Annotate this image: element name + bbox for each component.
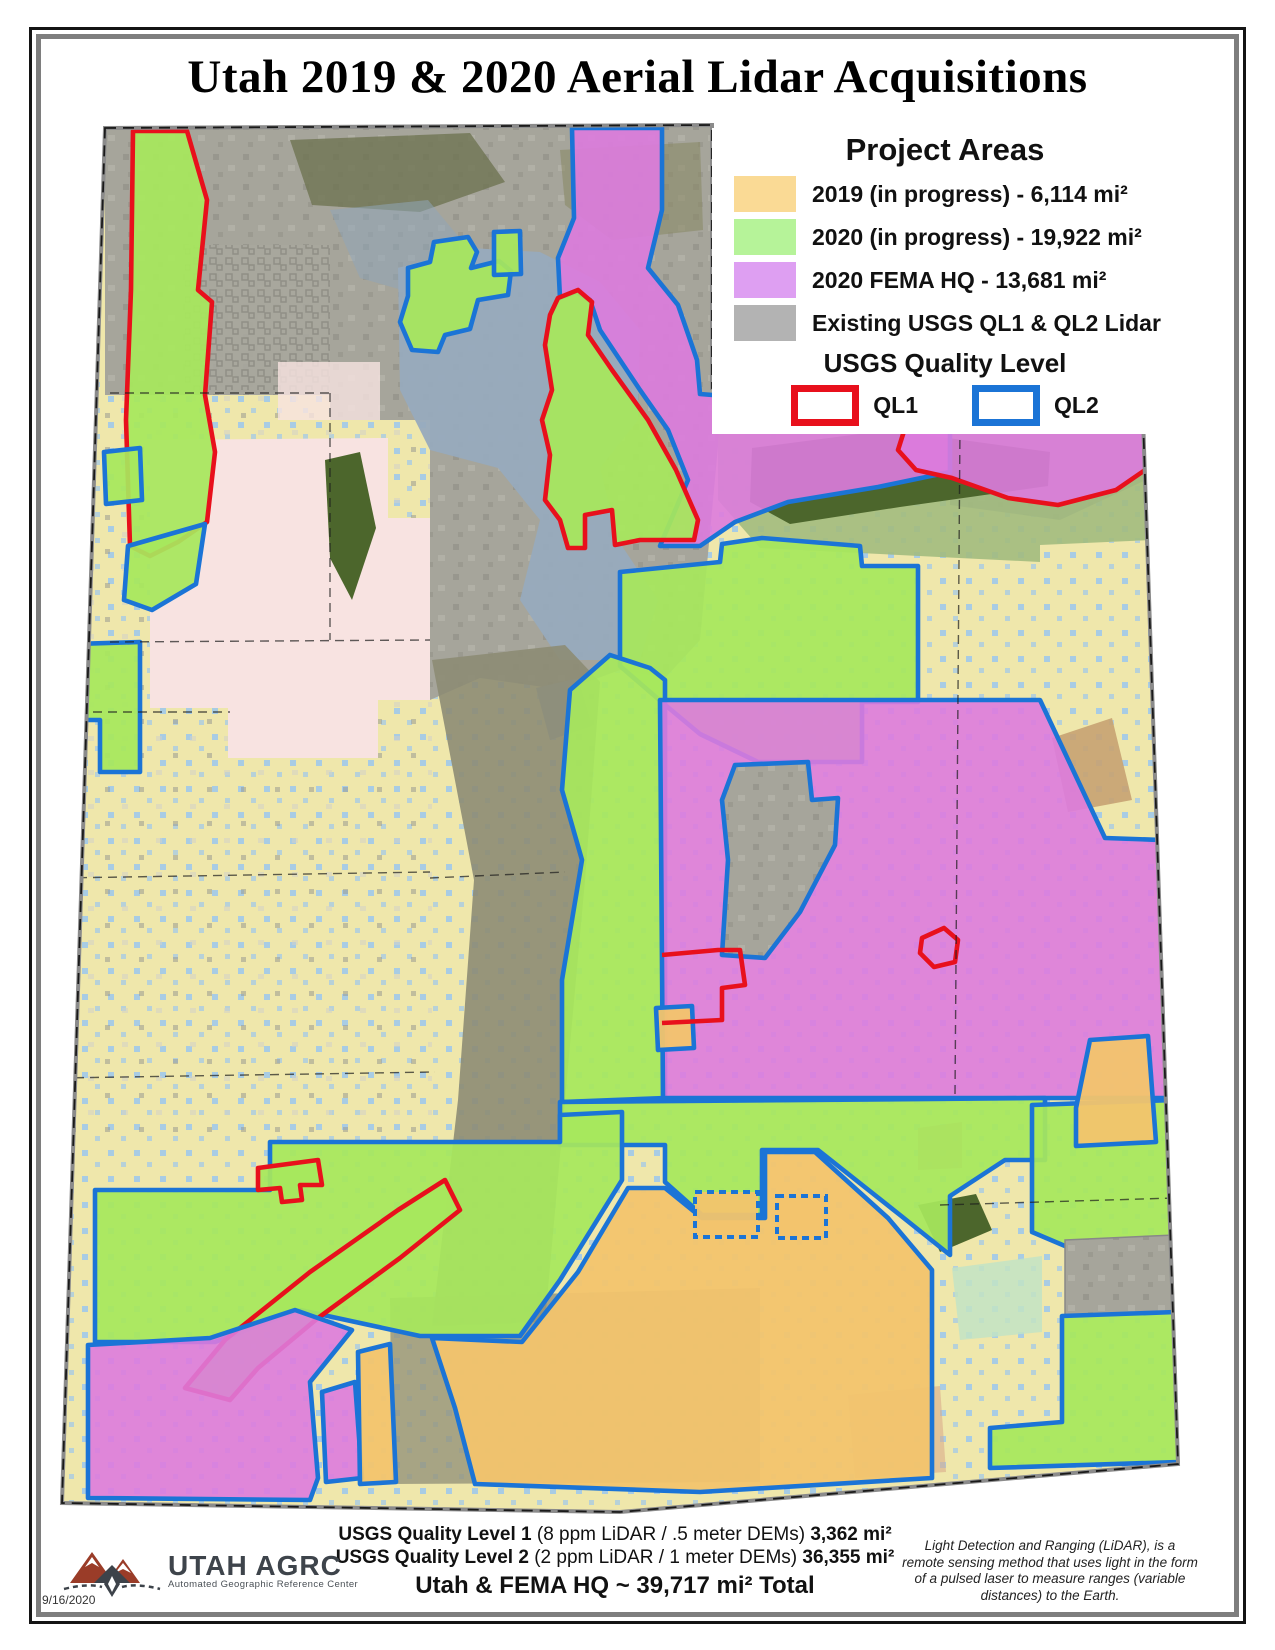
map-date: 9/16/2020 [42, 1593, 95, 1607]
ql2-stats-line: USGS Quality Level 2 (2 ppm LiDAR / 1 me… [330, 1546, 900, 1569]
legend-item-2020: 2020 (in progress) - 19,922 mi² [734, 219, 1178, 255]
map-legend: Project Areas 2019 (in progress) - 6,114… [712, 128, 1178, 434]
ql1-label: QL1 [873, 392, 918, 419]
total-area-line: Utah & FEMA HQ ~ 39,717 mi² Total [330, 1572, 900, 1600]
quality-level-row: QL1 QL2 [712, 385, 1178, 426]
quality-level-title: USGS Quality Level [712, 348, 1178, 379]
logo-name: UTAH AGRC [168, 1553, 358, 1579]
legend-item-existing: Existing USGS QL1 & QL2 Lidar [734, 305, 1178, 341]
swatch-fema [734, 262, 796, 298]
page-title: Utah 2019 & 2020 Aerial Lidar Acquisitio… [0, 50, 1275, 104]
logo-subtitle: Automated Geographic Reference Center [168, 1579, 358, 1590]
legend-item-2019: 2019 (in progress) - 6,114 mi² [734, 176, 1178, 212]
legend-item-fema: 2020 FEMA HQ - 13,681 mi² [734, 262, 1178, 298]
swatch-2020 [734, 219, 796, 255]
ql2-label: QL2 [1054, 392, 1099, 419]
agrc-mountain-icon [62, 1543, 162, 1599]
ql1-outline-swatch [791, 385, 859, 426]
ql1-stats-line: USGS Quality Level 1 (8 ppm LiDAR / .5 m… [330, 1523, 900, 1546]
agrc-logo: UTAH AGRC Automated Geographic Reference… [62, 1543, 358, 1599]
ql2-outline-swatch [972, 385, 1040, 426]
swatch-existing [734, 305, 796, 341]
swatch-2019 [734, 176, 796, 212]
footer-stats: USGS Quality Level 1 (8 ppm LiDAR / .5 m… [330, 1523, 900, 1600]
legend-title: Project Areas [712, 132, 1178, 168]
lidar-definition-note: Light Detection and Ranging (LiDAR), is … [902, 1538, 1198, 1604]
